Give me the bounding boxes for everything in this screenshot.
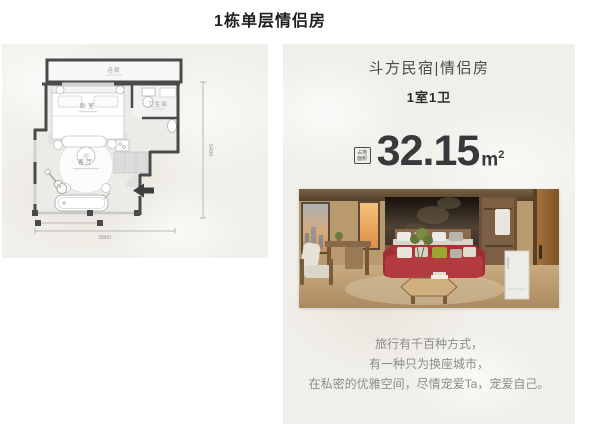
- corridor-label: 连廊: [107, 66, 120, 74]
- closet-shelf: [485, 245, 513, 247]
- bed-pillow: [397, 232, 411, 241]
- floor-plan-drawing: 连廊 卧室 卫生间 客厅 5800 5400: [2, 44, 268, 258]
- plant-pot: [337, 238, 341, 242]
- bed-pillow: [432, 232, 446, 241]
- page-title: 1栋单层情侣房: [0, 7, 540, 31]
- appliance: [116, 140, 129, 151]
- door-handle: [539, 245, 542, 259]
- desk-top: [325, 241, 371, 247]
- living-room-label: 客厅: [78, 158, 94, 166]
- bathtub-drain: [62, 201, 66, 205]
- height-dimension: 5400: [207, 144, 213, 156]
- desk-chair: [345, 247, 363, 269]
- armchair-frame: [329, 259, 333, 285]
- listing-layout: 1室1卫: [407, 87, 451, 106]
- stone-texture: [437, 197, 461, 209]
- stool: [102, 184, 111, 193]
- description-text: 旅行有千百种方式， 有一种只为换座城市， 在私密的优雅空间，尽情宠爱Ta，宠爱自…: [309, 334, 550, 394]
- description-line-3: 在私密的优雅空间，尽情宠爱Ta，宠爱自己。: [309, 374, 550, 394]
- area-unit-letter: m: [481, 149, 498, 170]
- bed-pillow: [449, 232, 463, 241]
- area-icon-line2: 面积: [357, 156, 367, 162]
- sofa-pillow: [450, 249, 462, 258]
- description-line-2: 有一种只为换座城市，: [309, 354, 550, 374]
- info-panel: 斗方民宿|情侣房 1室1卫 占地 面积 32.15 m2: [283, 44, 575, 424]
- bath-counter: [160, 88, 176, 97]
- sink: [168, 120, 177, 133]
- bathroom-label: 卫生间: [148, 100, 168, 108]
- area-row: 占地 面积 32.15 m2: [354, 130, 505, 173]
- bedroom-label: 卧室: [80, 102, 96, 110]
- armchair-frame: [300, 259, 304, 285]
- area-value: 32.15: [377, 130, 480, 173]
- listing-page: 1栋单层情侣房: [0, 0, 600, 424]
- side-table: [108, 140, 117, 149]
- side-table: [54, 141, 63, 150]
- nightstand: [56, 86, 64, 94]
- desk-leg: [365, 247, 369, 275]
- pillow: [94, 96, 118, 107]
- books: [433, 272, 446, 275]
- coffee-table: [401, 278, 457, 296]
- room-photo-scene: [299, 189, 559, 308]
- bedroom-caption: [79, 111, 97, 112]
- nightstand: [116, 86, 124, 94]
- sofa-pillow: [397, 247, 412, 258]
- corridor-caption: [106, 75, 122, 76]
- width-dimension: 5800: [99, 235, 111, 241]
- flower-foliage: [423, 235, 433, 245]
- sofa-pillow-green: [432, 247, 447, 258]
- hanging-clothes: [495, 209, 510, 235]
- armchair-seat: [304, 265, 332, 278]
- area-unit: m2: [481, 149, 504, 171]
- living-room-caption: [73, 168, 99, 169]
- pillow: [58, 96, 82, 107]
- area-icon: 占地 面积: [354, 147, 371, 164]
- toilet: [142, 88, 155, 96]
- description-line-1: 旅行有千百种方式，: [309, 334, 550, 354]
- stone-texture: [417, 206, 449, 224]
- room-photo: [299, 189, 559, 308]
- sofa-pillow: [463, 247, 476, 257]
- books: [431, 275, 448, 279]
- area-unit-sup: 2: [498, 149, 504, 161]
- closet-block: [114, 152, 147, 173]
- floor-plan-panel: 连廊 卧室 卫生间 客厅 5800 5400: [2, 44, 268, 258]
- sofa-small: [62, 136, 106, 147]
- bathroom-caption: [152, 109, 165, 110]
- table-center: [83, 153, 89, 159]
- listing-name: 斗方民宿|情侣房: [369, 57, 490, 78]
